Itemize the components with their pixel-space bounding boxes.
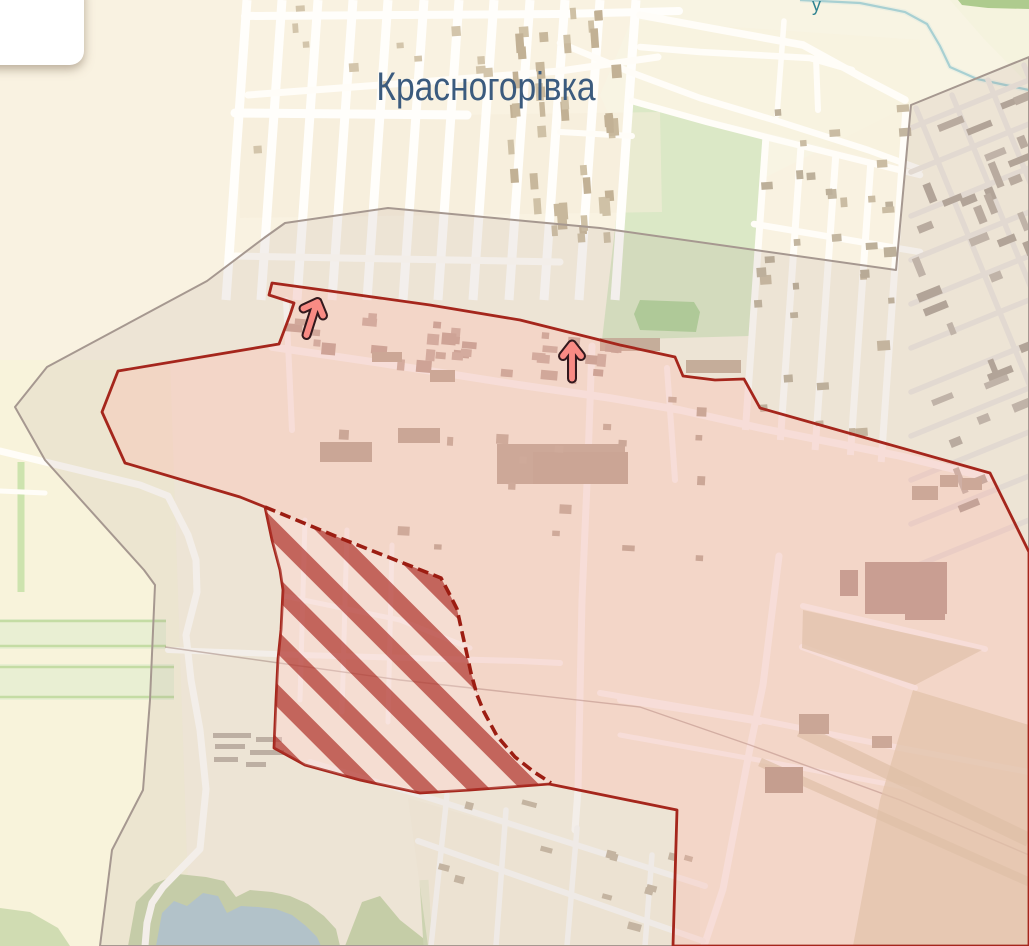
svg-text:Красногорівка: Красногорівка [376, 64, 596, 108]
svg-text:у: у [812, 0, 821, 15]
